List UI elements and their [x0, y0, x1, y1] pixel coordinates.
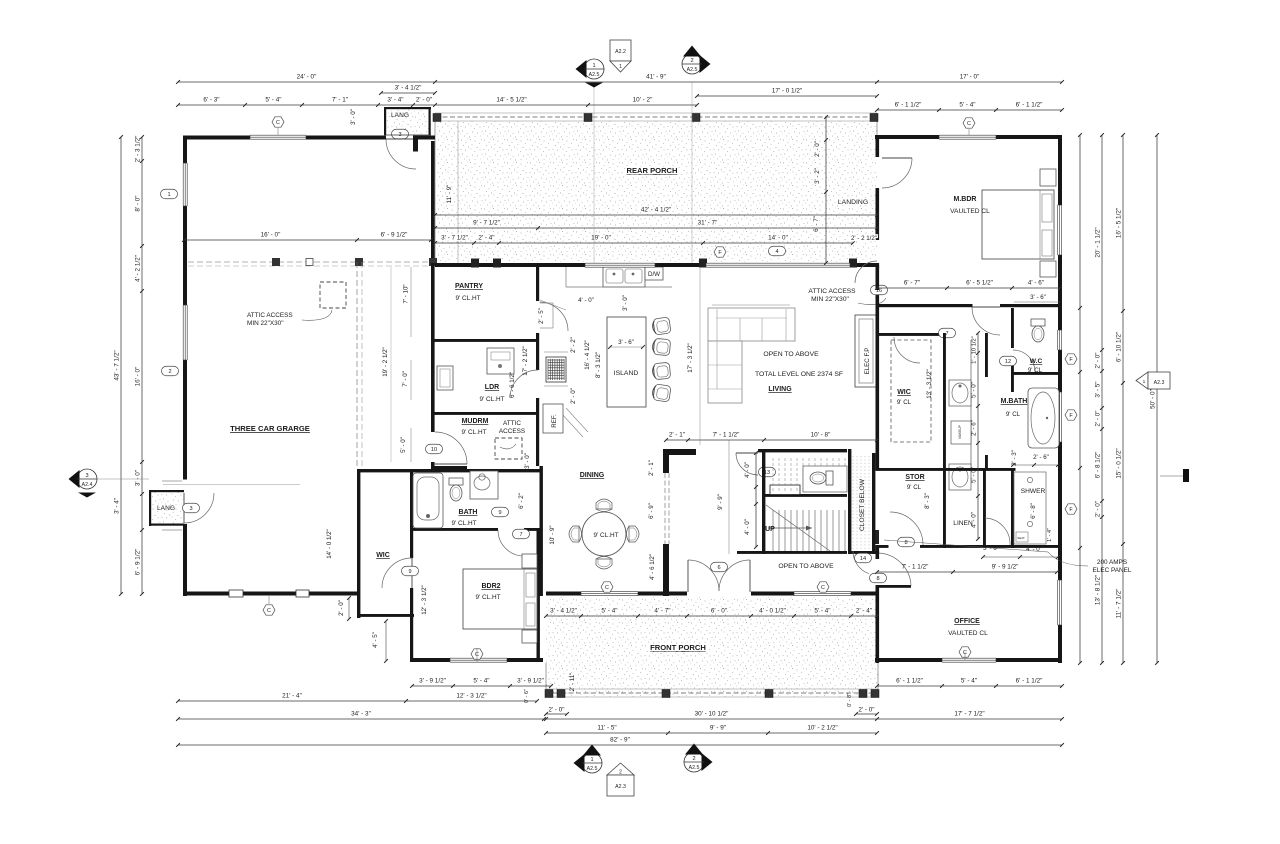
svg-text:2' - 0": 2' - 0"	[1095, 501, 1102, 517]
svg-text:9: 9	[408, 569, 411, 575]
svg-text:5' - 4": 5' - 4"	[601, 608, 617, 615]
svg-text:12' - 3 1/2": 12' - 3 1/2"	[421, 585, 428, 615]
svg-text:3: 3	[189, 506, 192, 512]
svg-text:4' - 0": 4' - 0"	[744, 462, 751, 478]
svg-text:LIVING: LIVING	[768, 386, 792, 393]
svg-text:MUDRM: MUDRM	[462, 418, 489, 425]
svg-text:4' - 7": 4' - 7"	[654, 608, 670, 615]
svg-text:6' - 1 1/2": 6' - 1 1/2"	[1016, 678, 1043, 685]
svg-text:11' - 7 1/2": 11' - 7 1/2"	[1116, 589, 1123, 619]
svg-text:6' - 2": 6' - 2"	[518, 493, 525, 509]
svg-text:17' - 2 1/2": 17' - 2 1/2"	[522, 346, 529, 376]
svg-text:ELEC F.P: ELEC F.P	[864, 348, 871, 375]
svg-text:3' - 0": 3' - 0"	[622, 295, 629, 311]
svg-text:OFFICE: OFFICE	[954, 618, 980, 625]
svg-text:5' - 4": 5' - 4"	[814, 608, 830, 615]
svg-text:2' - 3 1/2": 2' - 3 1/2"	[135, 136, 142, 163]
svg-text:34' - 3": 34' - 3"	[351, 711, 371, 718]
svg-text:STOR: STOR	[905, 474, 924, 481]
svg-text:24' - 0": 24' - 0"	[297, 74, 317, 81]
svg-text:3' - 0": 3' - 0"	[135, 470, 142, 486]
svg-text:6' - 6 1/2": 6' - 6 1/2"	[509, 372, 516, 398]
svg-text:SHWER: SHWER	[1021, 488, 1046, 495]
svg-text:BATH: BATH	[459, 509, 478, 516]
svg-text:LANG: LANG	[391, 112, 409, 119]
svg-text:2' - 0": 2' - 0"	[814, 141, 821, 157]
svg-text:4' - 6 1/2": 4' - 6 1/2"	[649, 554, 656, 580]
svg-text:9' CL.HT: 9' CL.HT	[479, 396, 504, 403]
svg-text:5' - 0": 5' - 0"	[971, 382, 978, 398]
svg-text:2: 2	[690, 58, 693, 64]
svg-text:2: 2	[692, 756, 695, 762]
svg-text:FRONT PORCH: FRONT PORCH	[650, 643, 706, 652]
svg-text:MIN 22"X30": MIN 22"X30"	[811, 296, 849, 303]
svg-text:1' - 4": 1' - 4"	[1047, 528, 1053, 542]
svg-text:ACCESS: ACCESS	[499, 428, 525, 435]
svg-text:9' CL.HT: 9' CL.HT	[461, 429, 486, 436]
svg-text:3' - 4": 3' - 4"	[114, 498, 121, 514]
svg-text:2' - 0": 2' - 0"	[1095, 410, 1102, 426]
svg-text:DINING: DINING	[580, 472, 605, 479]
svg-text:3' - 7 1/2": 3' - 7 1/2"	[441, 235, 468, 242]
svg-text:2' - 4": 2' - 4"	[478, 235, 494, 242]
svg-text:6' - 0": 6' - 0"	[711, 608, 727, 615]
svg-text:17' - 0 1/2": 17' - 0 1/2"	[772, 88, 802, 95]
svg-text:16' - 4 1/2": 16' - 4 1/2"	[584, 340, 591, 370]
svg-text:3: 3	[85, 473, 88, 479]
svg-text:82' - 9": 82' - 9"	[610, 737, 630, 744]
svg-text:ATTIC ACCESS: ATTIC ACCESS	[808, 288, 856, 295]
svg-text:7: 7	[519, 532, 522, 538]
svg-text:17' - 3 1/2": 17' - 3 1/2"	[687, 343, 694, 373]
svg-text:2' - 11": 2' - 11"	[569, 673, 576, 692]
svg-text:A2.2: A2.2	[615, 49, 626, 55]
svg-text:11' - 9": 11' - 9"	[446, 185, 453, 204]
svg-text:10' - 2": 10' - 2"	[633, 97, 653, 104]
svg-text:12' - 3 1/2": 12' - 3 1/2"	[456, 693, 486, 700]
svg-text:4' - 0": 4' - 0"	[971, 512, 978, 528]
svg-text:6' - 8": 6' - 8"	[1030, 503, 1037, 519]
svg-text:THREE CAR GRARGE: THREE CAR GRARGE	[230, 424, 310, 433]
svg-text:M.BDR: M.BDR	[954, 196, 977, 203]
svg-text:7' - 1": 7' - 1"	[332, 97, 348, 104]
svg-text:M.BATH: M.BATH	[1001, 398, 1028, 405]
svg-text:20' - 1 1/2": 20' - 1 1/2"	[1095, 227, 1102, 257]
svg-text:BDR2: BDR2	[481, 583, 500, 590]
svg-text:LANG: LANG	[157, 505, 175, 512]
svg-text:5' - 4": 5' - 4"	[473, 678, 489, 685]
svg-text:16' - 0": 16' - 0"	[261, 232, 281, 239]
svg-text:3' - 6": 3' - 6"	[1030, 294, 1046, 301]
svg-text:2' - 1": 2' - 1"	[669, 432, 685, 439]
svg-text:6' - 1 1/2": 6' - 1 1/2"	[896, 678, 923, 685]
svg-text:A2.5: A2.5	[587, 766, 598, 772]
svg-text:WIC: WIC	[897, 389, 911, 396]
svg-text:0' - 8": 0' - 8"	[847, 693, 853, 707]
svg-text:7' - 1 1/2": 7' - 1 1/2"	[902, 564, 929, 571]
svg-text:6' - 3": 6' - 3"	[203, 97, 219, 104]
svg-text:9' - 9 1/2": 9' - 9 1/2"	[992, 564, 1019, 571]
svg-text:MAKEUP: MAKEUP	[958, 425, 962, 438]
svg-text:4' - 0": 4' - 0"	[744, 519, 751, 535]
svg-text:CLOSET BELOW: CLOSET BELOW	[859, 478, 866, 531]
svg-text:3' - 9 1/2": 3' - 9 1/2"	[517, 678, 544, 685]
svg-text:4' - 0": 4' - 0"	[1026, 546, 1042, 553]
svg-text:50' - 0": 50' - 0"	[1150, 389, 1157, 409]
svg-text:VAULTED CL: VAULTED CL	[950, 208, 990, 215]
svg-text:15' - 0 1/2": 15' - 0 1/2"	[1116, 448, 1123, 478]
svg-text:14' - 5 1/2": 14' - 5 1/2"	[496, 97, 526, 104]
svg-text:13' - 8 1/2": 13' - 8 1/2"	[1095, 575, 1102, 605]
svg-text:9' - 9": 9' - 9"	[710, 725, 726, 732]
svg-text:OPEN TO ABOVE: OPEN TO ABOVE	[778, 563, 834, 570]
svg-text:7' - 1 1/2": 7' - 1 1/2"	[713, 432, 740, 439]
svg-text:A2.4: A2.4	[82, 482, 93, 488]
svg-text:5' - 4": 5' - 4"	[961, 678, 977, 685]
svg-text:A2.5: A2.5	[689, 765, 700, 771]
svg-text:2' - 0": 2' - 0"	[416, 97, 432, 104]
svg-text:2' - 4": 2' - 4"	[856, 608, 872, 615]
svg-text:17' - 7 1/2": 17' - 7 1/2"	[954, 711, 984, 718]
svg-text:31' - 7": 31' - 7"	[698, 220, 718, 227]
svg-text:10' - 9": 10' - 9"	[549, 525, 556, 544]
svg-text:16' - 5 1/2": 16' - 5 1/2"	[1116, 208, 1123, 238]
svg-text:W.C: W.C	[1030, 358, 1043, 365]
svg-text:SEAT: SEAT	[1017, 536, 1025, 540]
svg-text:2' - 0": 2' - 0"	[570, 388, 577, 404]
svg-text:9' CL: 9' CL	[897, 399, 912, 406]
svg-text:3' - 6": 3' - 6"	[618, 339, 634, 346]
svg-text:30' - 10 1/2": 30' - 10 1/2"	[695, 711, 729, 718]
svg-text:9: 9	[498, 510, 501, 516]
svg-text:9' CL: 9' CL	[1006, 411, 1021, 418]
svg-text:ATTIC ACCESS: ATTIC ACCESS	[247, 312, 293, 319]
svg-text:A2.3: A2.3	[1154, 380, 1165, 386]
svg-text:5' - 4": 5' - 4"	[265, 97, 281, 104]
svg-text:A2.5: A2.5	[589, 72, 600, 78]
svg-text:0' - 6": 0' - 6"	[524, 689, 530, 703]
svg-text:3' - 4 1/2": 3' - 4 1/2"	[550, 608, 577, 615]
svg-text:4: 4	[775, 249, 778, 255]
svg-text:8' - 3": 8' - 3"	[924, 493, 931, 509]
svg-text:1: 1	[590, 757, 593, 763]
svg-text:A2.3: A2.3	[615, 784, 626, 790]
svg-text:VAULTED CL: VAULTED CL	[948, 630, 988, 637]
svg-text:OPEN TO ABOVE: OPEN TO ABOVE	[763, 351, 819, 358]
svg-text:6' - 1 1/2": 6' - 1 1/2"	[1016, 102, 1043, 109]
svg-text:5' - 0": 5' - 0"	[971, 467, 978, 483]
svg-text:2' - 6": 2' - 6"	[1033, 454, 1049, 461]
svg-text:3' - 4 1/2": 3' - 4 1/2"	[395, 85, 422, 92]
svg-text:8: 8	[876, 576, 879, 582]
svg-text:2' - 6": 2' - 6"	[971, 420, 978, 436]
svg-text:6' - 5 1/2": 6' - 5 1/2"	[966, 280, 993, 287]
svg-text:PANTRY: PANTRY	[455, 283, 483, 290]
svg-text:12: 12	[1005, 359, 1011, 365]
svg-text:8' - 3 1/2": 8' - 3 1/2"	[595, 352, 602, 378]
svg-text:C: C	[267, 608, 271, 614]
svg-text:5' - 0": 5' - 0"	[400, 437, 407, 453]
svg-text:3' - 0": 3' - 0"	[524, 453, 531, 469]
svg-text:LANDING: LANDING	[838, 199, 868, 206]
svg-text:1: 1	[1143, 379, 1146, 385]
svg-text:4' - 2 1/2": 4' - 2 1/2"	[135, 255, 142, 282]
svg-text:2' - 0": 2' - 0"	[548, 707, 564, 714]
svg-text:9' CL.HT: 9' CL.HT	[593, 532, 618, 539]
svg-text:4' - 6": 4' - 6"	[1028, 280, 1044, 287]
svg-text:2' - 2 1/2": 2' - 2 1/2"	[851, 235, 877, 242]
svg-text:9' CL: 9' CL	[1028, 367, 1043, 374]
svg-text:MIN 22"X30": MIN 22"X30"	[247, 320, 284, 327]
svg-text:9' - 9": 9' - 9"	[717, 494, 724, 510]
svg-text:4' - 5": 4' - 5"	[372, 632, 379, 648]
svg-text:9' CL.HT: 9' CL.HT	[455, 295, 480, 302]
svg-text:8' - 0": 8' - 0"	[135, 195, 142, 211]
svg-text:5' - 4": 5' - 4"	[959, 102, 975, 109]
svg-text:C: C	[276, 120, 280, 126]
svg-text:1: 1	[619, 64, 622, 70]
svg-text:6: 6	[717, 565, 720, 571]
svg-text:7' - 10": 7' - 10"	[403, 284, 410, 303]
svg-text:19' - 2 1/2": 19' - 2 1/2"	[382, 347, 389, 377]
svg-text:9' - 7 1/2": 9' - 7 1/2"	[473, 220, 500, 227]
svg-text:REAR PORCH: REAR PORCH	[626, 166, 677, 175]
svg-text:10' - 8": 10' - 8"	[811, 432, 831, 439]
svg-text:10' - 2 1/2": 10' - 2 1/2"	[807, 725, 837, 732]
svg-text:3' - 9 1/2": 3' - 9 1/2"	[419, 678, 446, 685]
svg-text:LDR: LDR	[485, 384, 499, 391]
svg-text:3' - 6": 3' - 6"	[983, 545, 999, 552]
svg-text:41' - 9": 41' - 9"	[646, 74, 666, 81]
svg-text:1: 1	[167, 192, 170, 198]
svg-text:A2.5: A2.5	[687, 67, 698, 73]
svg-text:6' - 10 1/2": 6' - 10 1/2"	[1116, 332, 1123, 362]
svg-text:2' - 0": 2' - 0"	[338, 600, 345, 616]
svg-text:2' - 0": 2' - 0"	[858, 707, 874, 714]
svg-text:14' - 0 1/2": 14' - 0 1/2"	[326, 529, 333, 559]
svg-text:ISLAND: ISLAND	[614, 370, 639, 377]
svg-text:21' - 4": 21' - 4"	[282, 693, 302, 700]
svg-text:1: 1	[592, 63, 595, 69]
svg-text:4' - 0 1/2": 4' - 0 1/2"	[759, 608, 786, 615]
svg-text:2' - 1": 2' - 1"	[648, 460, 655, 476]
svg-text:6' - 9 1/2": 6' - 9 1/2"	[135, 549, 142, 576]
svg-text:6' - 7": 6' - 7"	[904, 280, 920, 287]
svg-text:9' CL.HT: 9' CL.HT	[475, 594, 500, 601]
svg-text:6' - 9": 6' - 9"	[648, 503, 655, 519]
svg-text:TOTAL LEVEL ONE 2374 SF: TOTAL LEVEL ONE 2374 SF	[755, 371, 843, 378]
svg-text:10: 10	[431, 447, 437, 453]
svg-text:REF.: REF.	[551, 414, 558, 428]
svg-text:6' - 7": 6' - 7"	[813, 216, 820, 232]
svg-text:6' - 8 1/2": 6' - 8 1/2"	[1095, 452, 1102, 479]
svg-text:C: C	[967, 121, 971, 127]
svg-text:9' CL: 9' CL	[907, 484, 922, 491]
svg-text:3' - 5": 3' - 5"	[1095, 381, 1102, 397]
svg-text:17' - 0": 17' - 0"	[960, 74, 980, 81]
svg-text:2' - 5": 2' - 5"	[538, 308, 545, 324]
svg-text:3' - 2": 3' - 2"	[814, 168, 821, 184]
svg-text:7' - 0": 7' - 0"	[402, 371, 409, 387]
svg-text:43' - 7 1/2": 43' - 7 1/2"	[114, 350, 121, 380]
svg-text:6' - 1 1/2": 6' - 1 1/2"	[895, 102, 922, 109]
svg-text:1' - 10 1/2": 1' - 10 1/2"	[972, 336, 978, 364]
svg-text:16' - 0": 16' - 0"	[135, 367, 142, 387]
svg-text:14' - 0": 14' - 0"	[768, 235, 788, 242]
svg-text:6' - 9 1/2": 6' - 9 1/2"	[381, 232, 408, 239]
svg-text:3' - 4": 3' - 4"	[387, 97, 403, 104]
svg-text:42' - 4 1/2": 42' - 4 1/2"	[641, 207, 671, 214]
svg-text:4' - 0": 4' - 0"	[578, 297, 594, 304]
svg-text:3' - 0": 3' - 0"	[350, 109, 357, 125]
svg-text:2: 2	[168, 369, 171, 375]
svg-text:C: C	[821, 585, 825, 591]
svg-text:D/W: D/W	[648, 271, 660, 278]
svg-text:2' - 3": 2' - 3"	[1011, 450, 1018, 466]
svg-text:200 AMPS: 200 AMPS	[1097, 559, 1127, 566]
svg-text:C: C	[605, 585, 609, 591]
svg-text:ELEC PANEL: ELEC PANEL	[1093, 567, 1132, 574]
svg-text:8: 8	[904, 540, 907, 546]
svg-text:9' CL.HT: 9' CL.HT	[451, 520, 476, 527]
svg-text:7: 7	[945, 331, 948, 337]
svg-text:11' - 5": 11' - 5"	[597, 725, 616, 732]
svg-text:14: 14	[860, 556, 866, 562]
svg-text:2: 2	[619, 770, 622, 776]
svg-text:UP: UP	[765, 526, 775, 533]
svg-text:13' - 3 1/2": 13' - 3 1/2"	[926, 369, 933, 399]
svg-text:WIC: WIC	[376, 552, 390, 559]
svg-text:2' - 0": 2' - 0"	[1095, 352, 1102, 368]
svg-text:ATTIC: ATTIC	[503, 420, 521, 427]
svg-text:2' - 2": 2' - 2"	[570, 337, 577, 353]
